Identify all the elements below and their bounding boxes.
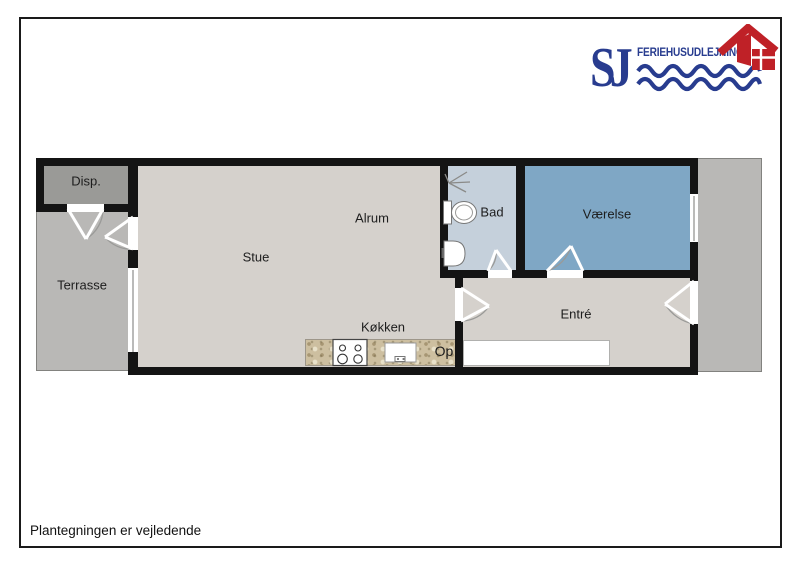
floorplan-page: SJ FERIEHUSUDLEJNING [0,0,800,566]
room-label-bad: Bad [480,205,503,220]
washbasin-icon [442,241,466,266]
room-label-entre: Entré [560,307,591,322]
room-label-alrum: Alrum [355,211,389,226]
room-label-disp: Disp. [71,174,101,189]
kitchen-sink-icon [385,343,416,362]
door-swing-entre-inner [461,288,489,321]
stove-icon [333,340,367,366]
door-swing-disp [68,209,103,239]
door-swing-entre-front [665,281,694,324]
door-swing-bad [488,250,511,271]
room-label-stue: Stue [243,250,270,265]
shower-icon [445,172,470,192]
door-swing-vaerelse [547,246,583,271]
room-label-terrasse: Terrasse [57,278,107,293]
toilet-icon [444,201,477,224]
room-label-vaerelse: Værelse [583,207,631,222]
room-label-op: Op [435,343,454,359]
door-swing-stue [105,217,133,249]
plan-symbol-overlay [0,0,800,566]
footer-disclaimer: Plantegningen er vejledende [30,523,201,538]
room-label-koekken: Køkken [361,320,405,335]
